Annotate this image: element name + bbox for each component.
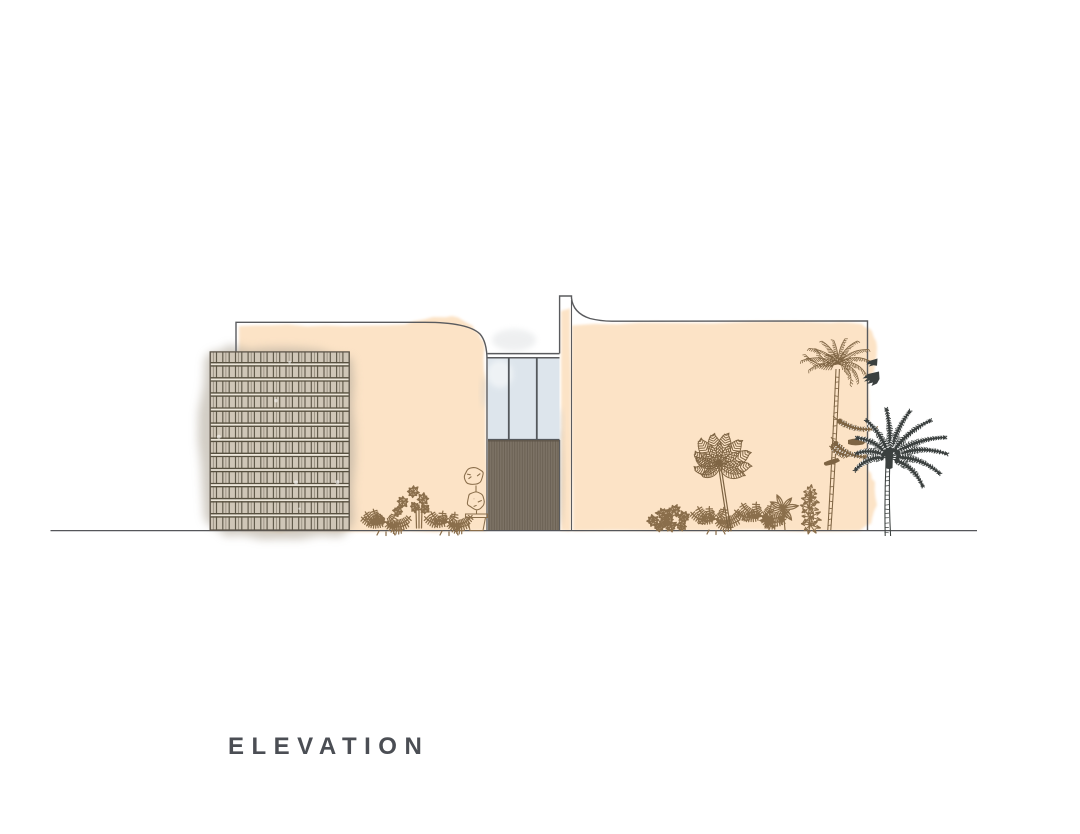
svg-text:ELEVATION: ELEVATION: [228, 733, 429, 760]
